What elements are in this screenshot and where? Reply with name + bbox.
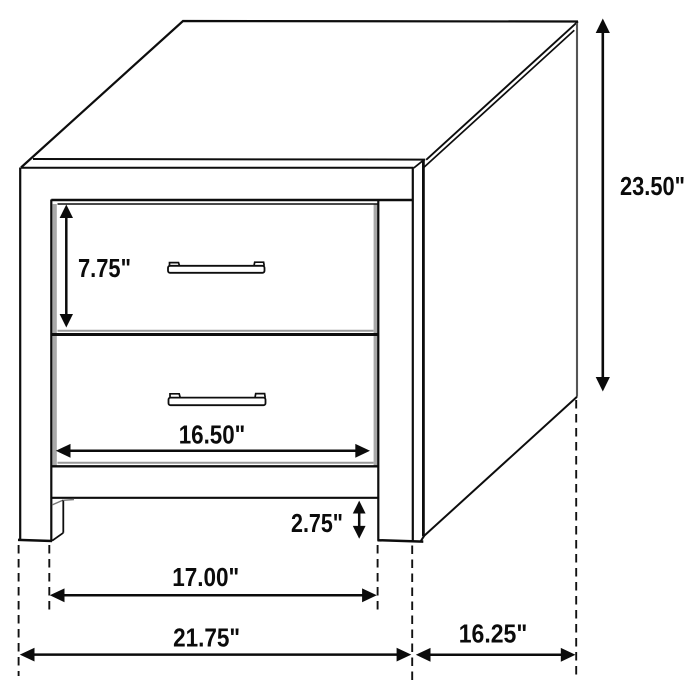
svg-text:21.75": 21.75" [173, 623, 240, 653]
svg-text:23.50": 23.50" [620, 171, 685, 201]
svg-text:17.00": 17.00" [172, 562, 239, 592]
svg-text:7.75": 7.75" [78, 253, 131, 283]
svg-text:16.25": 16.25" [459, 619, 528, 649]
svg-text:2.75": 2.75" [291, 508, 343, 538]
svg-text:16.50": 16.50" [179, 420, 246, 450]
